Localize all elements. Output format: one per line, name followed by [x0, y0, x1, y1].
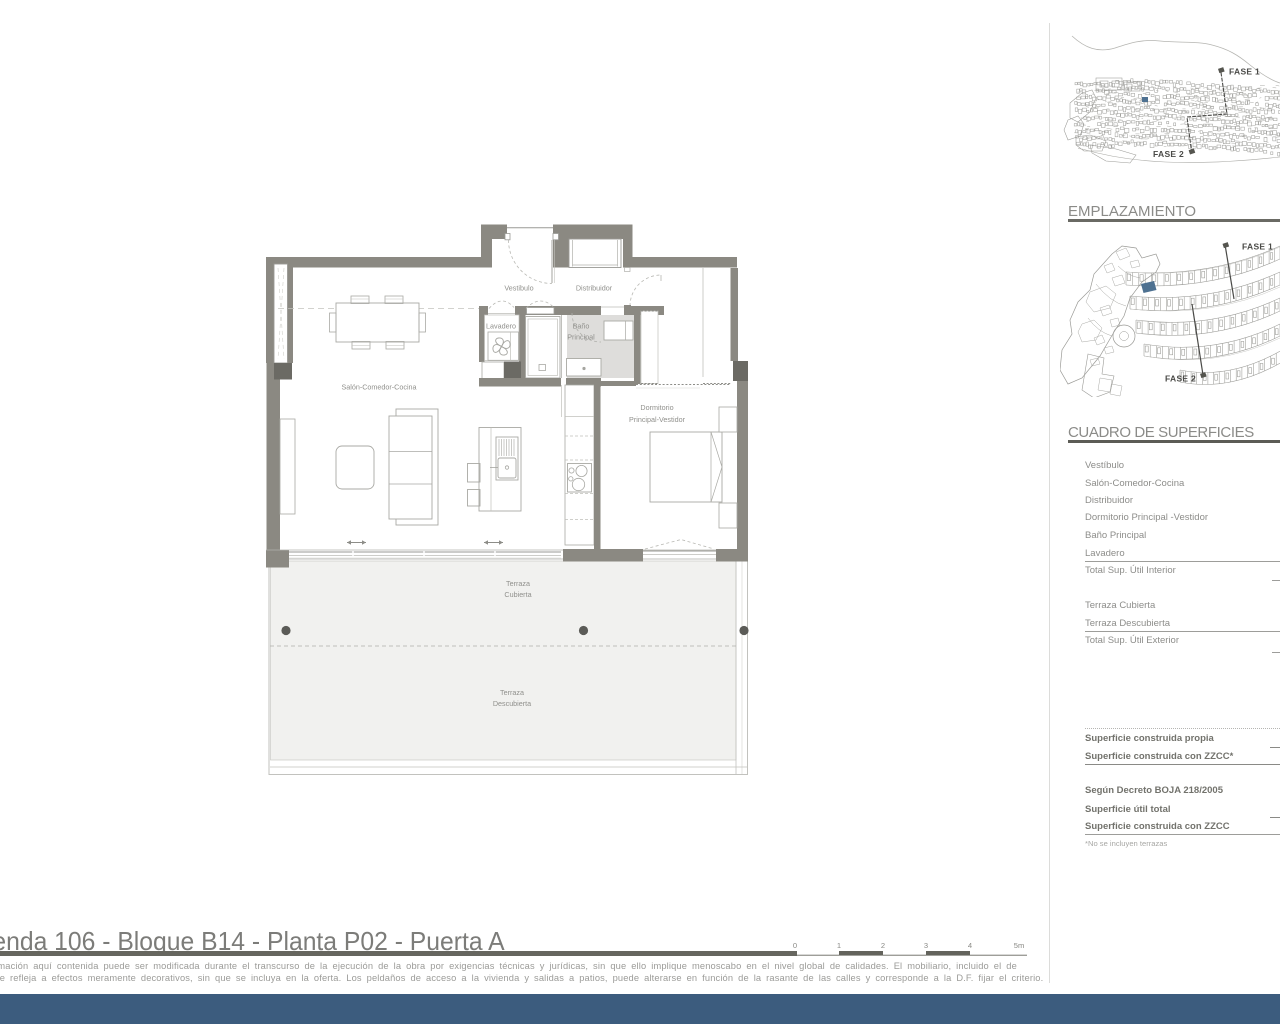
svg-text:Principal-Vestidor: Principal-Vestidor	[629, 415, 686, 424]
svg-text:5m: 5m	[1014, 941, 1025, 950]
svg-text:FASE 1: FASE 1	[1242, 242, 1273, 252]
svg-text:Terraza: Terraza	[500, 688, 524, 697]
svg-text:0: 0	[793, 941, 797, 950]
svg-text:Descubierta: Descubierta	[493, 699, 531, 708]
svg-text:Principal: Principal	[567, 333, 595, 342]
svg-text:FASE 2: FASE 2	[1165, 374, 1196, 384]
svg-text:Terraza: Terraza	[506, 579, 530, 588]
svg-text:4: 4	[968, 941, 972, 950]
svg-text:3: 3	[924, 941, 928, 950]
svg-text:Baño: Baño	[573, 322, 590, 331]
svg-text:2: 2	[881, 941, 885, 950]
svg-text:Lavadero: Lavadero	[486, 322, 516, 331]
svg-text:Vestibulo: Vestibulo	[504, 284, 533, 293]
svg-text:FASE 2: FASE 2	[1153, 149, 1184, 159]
svg-text:Cubierta: Cubierta	[504, 590, 531, 599]
svg-text:Salón-Comedor-Cocina: Salón-Comedor-Cocina	[341, 383, 416, 392]
svg-text:Distribuidor: Distribuidor	[576, 284, 613, 293]
svg-text:FASE 1: FASE 1	[1229, 67, 1260, 77]
svg-text:1: 1	[837, 941, 841, 950]
svg-text:Dormitorio: Dormitorio	[640, 403, 673, 412]
